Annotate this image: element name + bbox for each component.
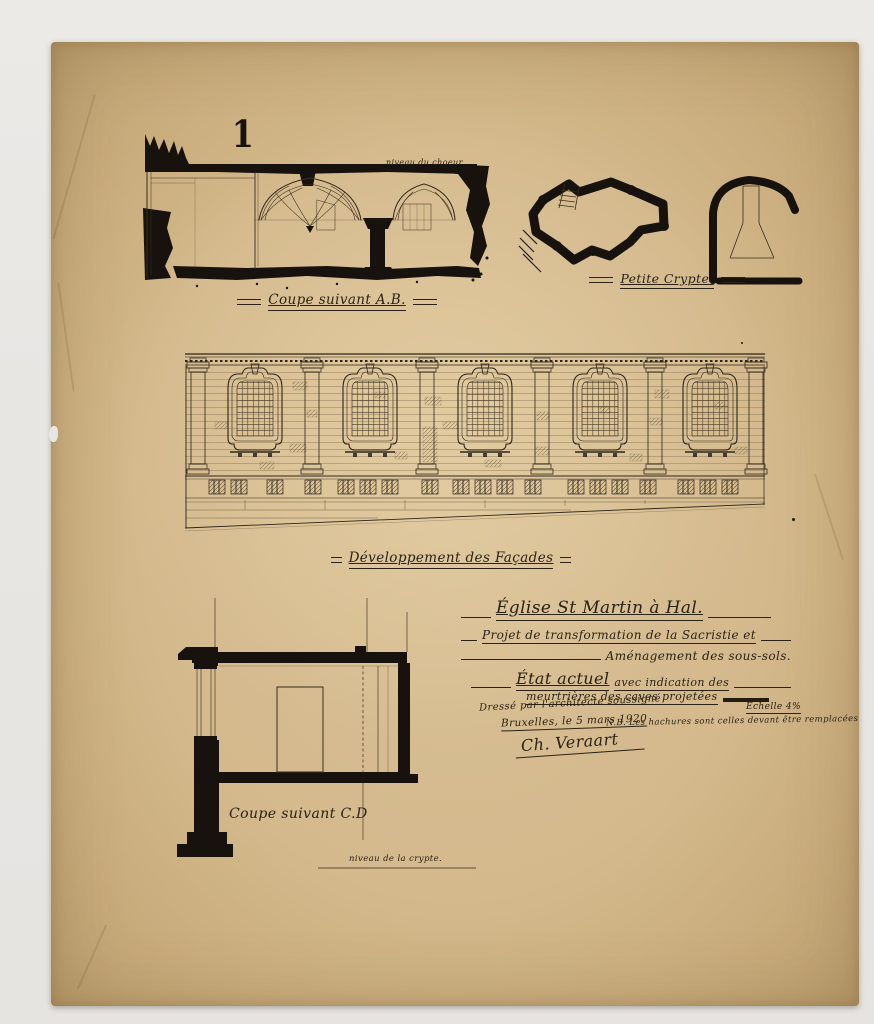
- title-rule: [461, 659, 601, 660]
- paper-speck: [741, 342, 743, 344]
- label-dash: [413, 299, 437, 305]
- paper-crease: [52, 95, 95, 240]
- label-dash: [721, 277, 745, 283]
- title-project-line2: Aménagement des sous-sols.: [461, 649, 791, 663]
- label-dash: [237, 299, 261, 305]
- title-rule: [471, 687, 511, 688]
- paper-edge-chip: [49, 426, 58, 442]
- scanned-architectural-drawing: { "colors": { "background": "#e8e6e3", "…: [0, 0, 874, 1024]
- title-rule: [461, 617, 491, 618]
- title-signature: Ch. Veraart: [514, 728, 645, 759]
- paper-crease: [814, 474, 843, 560]
- label-facade: Développement des Façades: [331, 550, 571, 569]
- title-church: Église St Martin à Hal.: [461, 598, 771, 621]
- facade-elevation-drawing: [185, 352, 765, 532]
- title-scale: Échelle 4%: [746, 702, 801, 714]
- title-rule: [708, 617, 771, 618]
- title-rule: [761, 640, 791, 641]
- paper-speck: [792, 518, 795, 521]
- label-section-cd: Coupe suivant C.D: [229, 806, 368, 822]
- title-project-line1: Projet de transformation de la Sacristie…: [461, 628, 791, 644]
- title-rule: [461, 640, 477, 641]
- title-rule: [734, 687, 791, 688]
- note-niveau-choeur: niveau du choeur: [386, 158, 463, 167]
- label-dash: [589, 277, 613, 283]
- label-section-ab: Coupe suivant A.B.: [217, 292, 457, 311]
- drawing-sheet: 1: [51, 42, 859, 1006]
- note-niveau-crypte: niveau de la crypte.: [349, 854, 442, 864]
- label-dash: [331, 557, 342, 563]
- title-state: État actuel avec indication des: [471, 669, 791, 691]
- paper-crease: [77, 925, 107, 990]
- section-cd-drawing: [170, 590, 480, 880]
- label-petite-crypte: Petite Crypte.: [547, 271, 787, 289]
- label-dash: [560, 557, 571, 563]
- paper-crease: [57, 282, 74, 391]
- section-ab-drawing: [137, 108, 497, 308]
